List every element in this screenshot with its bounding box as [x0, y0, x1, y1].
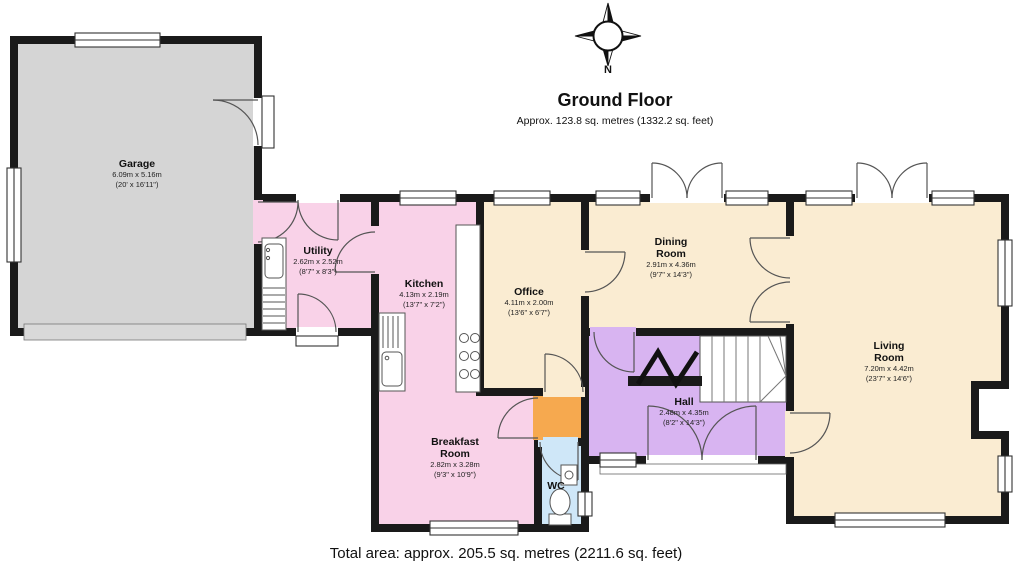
total-area-text: Total area: approx. 205.5 sq. metres (22…	[0, 545, 1012, 562]
wc-sink	[561, 465, 577, 485]
window-living-right-upper	[998, 240, 1012, 306]
room-garage	[14, 40, 258, 332]
window-living-top-right	[932, 191, 974, 205]
window-kitchen	[400, 191, 456, 205]
door-panel-garage-side	[262, 96, 274, 148]
window-garage-top	[75, 33, 160, 47]
window-wc-right	[578, 492, 592, 516]
kitchen-right-counter-hob	[456, 225, 480, 392]
floorplan-drawing	[0, 0, 1024, 571]
page-title: Ground Floor	[455, 90, 775, 112]
compass-icon	[575, 3, 641, 66]
window-dining-left	[596, 191, 640, 205]
room-lobby	[538, 392, 585, 442]
window-hall-bottom	[600, 453, 636, 467]
window-breakfast-bottom	[430, 521, 518, 535]
room-dining	[585, 198, 790, 332]
window-living-bottom	[835, 513, 945, 527]
wc-toilet	[549, 489, 571, 525]
room-living	[790, 198, 1005, 520]
door-panel-utility-rear	[296, 336, 338, 346]
page-subtitle: Approx. 123.8 sq. metres (1332.2 sq. fee…	[455, 115, 775, 127]
floorplan-page: Ground Floor Approx. 123.8 sq. metres (1…	[0, 0, 1024, 571]
compass-north-label: N	[596, 64, 620, 76]
window-living-top-left	[806, 191, 852, 205]
window-living-right-lower	[998, 456, 1012, 492]
french-doors-dining	[652, 163, 722, 198]
window-garage-left	[7, 168, 21, 262]
garage-door	[24, 324, 246, 340]
plan-title-block: Ground Floor Approx. 123.8 sq. metres (1…	[455, 90, 775, 127]
french-doors-living	[857, 163, 927, 198]
window-dining-right	[726, 191, 768, 205]
kitchen-left-counter	[379, 313, 405, 391]
utility-sink-unit	[262, 238, 286, 330]
window-office	[494, 191, 550, 205]
